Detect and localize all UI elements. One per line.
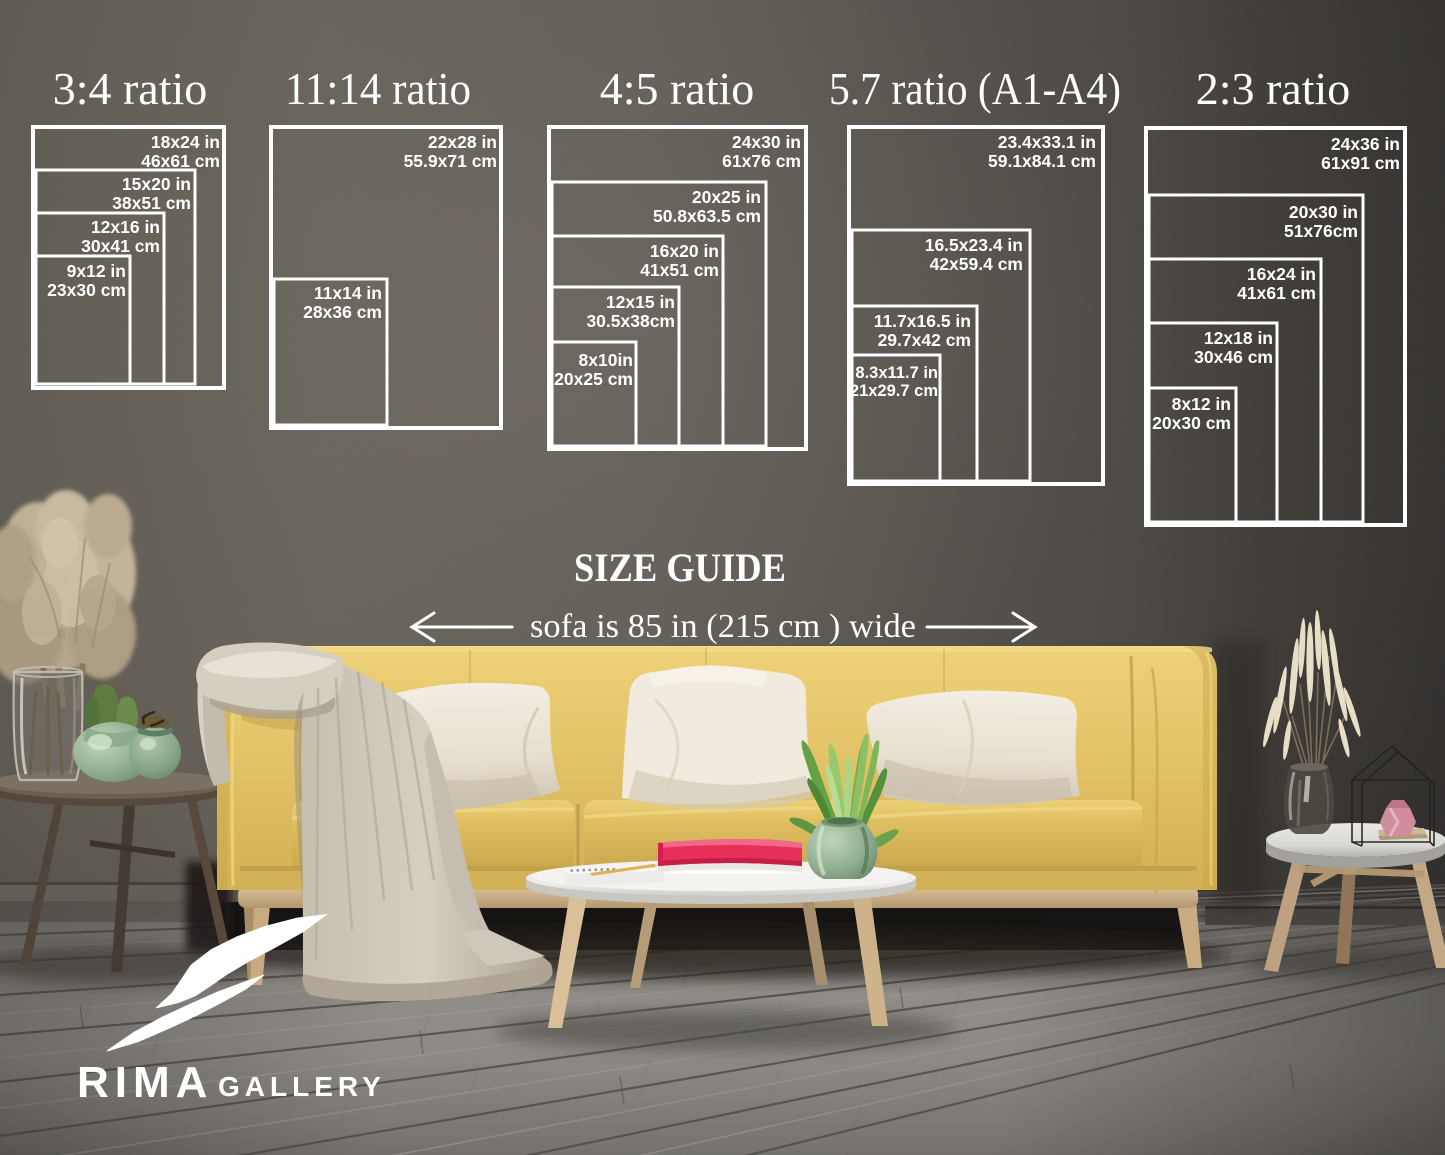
svg-text:11:14 ratio: 11:14 ratio [285,63,471,114]
svg-text:42x59.4 cm: 42x59.4 cm [930,254,1023,274]
svg-text:38x51 cm: 38x51 cm [112,193,191,213]
svg-text:15x20 in: 15x20 in [122,174,191,194]
svg-text:20x25 cm: 20x25 cm [554,369,633,389]
svg-text:8x10in: 8x10in [579,350,633,370]
svg-text:11.7x16.5 in: 11.7x16.5 in [874,311,971,331]
svg-text:24x36 in: 24x36 in [1331,134,1400,154]
svg-text:18x24 in: 18x24 in [151,132,220,152]
svg-text:2:3 ratio: 2:3 ratio [1196,63,1351,114]
svg-text:50.8x63.5 cm: 50.8x63.5 cm [653,206,761,226]
svg-text:21x29.7 cm: 21x29.7 cm [850,382,938,400]
svg-text:61x76 cm: 61x76 cm [722,151,801,171]
svg-text:3:4 ratio: 3:4 ratio [53,63,208,114]
svg-text:12x16 in: 12x16 in [91,217,160,237]
svg-text:RIMA: RIMA [77,1058,213,1107]
svg-text:46x61 cm: 46x61 cm [141,151,220,171]
svg-text:16x20 in: 16x20 in [650,241,719,261]
svg-text:55.9x71 cm: 55.9x71 cm [404,151,497,171]
svg-text:23.4x33.1 in: 23.4x33.1 in [998,132,1096,152]
svg-text:28x36 cm: 28x36 cm [303,302,382,322]
svg-text:20x30 in: 20x30 in [1289,202,1358,222]
svg-text:16x24 in: 16x24 in [1247,264,1316,284]
svg-text:8x12 in: 8x12 in [1172,394,1231,414]
svg-text:12x15 in: 12x15 in [606,292,675,312]
svg-text:20x30 cm: 20x30 cm [1152,413,1231,433]
svg-text:SIZE GUIDE: SIZE GUIDE [574,545,786,590]
svg-text:41x61 cm: 41x61 cm [1237,283,1316,303]
svg-text:24x30 in: 24x30 in [732,132,801,152]
svg-text:23x30 cm: 23x30 cm [47,280,126,300]
svg-text:5.7 ratio (A1-A4): 5.7 ratio (A1-A4) [829,63,1121,114]
svg-text:16.5x23.4 in: 16.5x23.4 in [925,235,1023,255]
svg-text:8.3x11.7 in: 8.3x11.7 in [855,364,938,382]
svg-text:61x91 cm: 61x91 cm [1321,153,1400,173]
svg-text:29.7x42 cm: 29.7x42 cm [878,330,971,350]
svg-text:30x46 cm: 30x46 cm [1194,347,1273,367]
svg-text:30x41 cm: 30x41 cm [81,236,160,256]
svg-text:9x12 in: 9x12 in [67,261,126,281]
svg-text:4:5 ratio: 4:5 ratio [600,63,755,114]
svg-text:GALLERY: GALLERY [218,1071,386,1102]
svg-text:sofa is 85 in (215 cm ) wide: sofa is 85 in (215 cm ) wide [530,608,916,645]
svg-text:12x18 in: 12x18 in [1204,328,1273,348]
svg-text:11x14 in: 11x14 in [314,283,382,303]
svg-text:22x28 in: 22x28 in [428,132,497,152]
svg-text:41x51 cm: 41x51 cm [640,260,719,280]
svg-text:59.1x84.1 cm: 59.1x84.1 cm [988,151,1096,171]
svg-text:30.5x38cm: 30.5x38cm [586,311,675,331]
svg-text:51x76cm: 51x76cm [1284,221,1358,241]
svg-text:20x25 in: 20x25 in [692,187,761,207]
